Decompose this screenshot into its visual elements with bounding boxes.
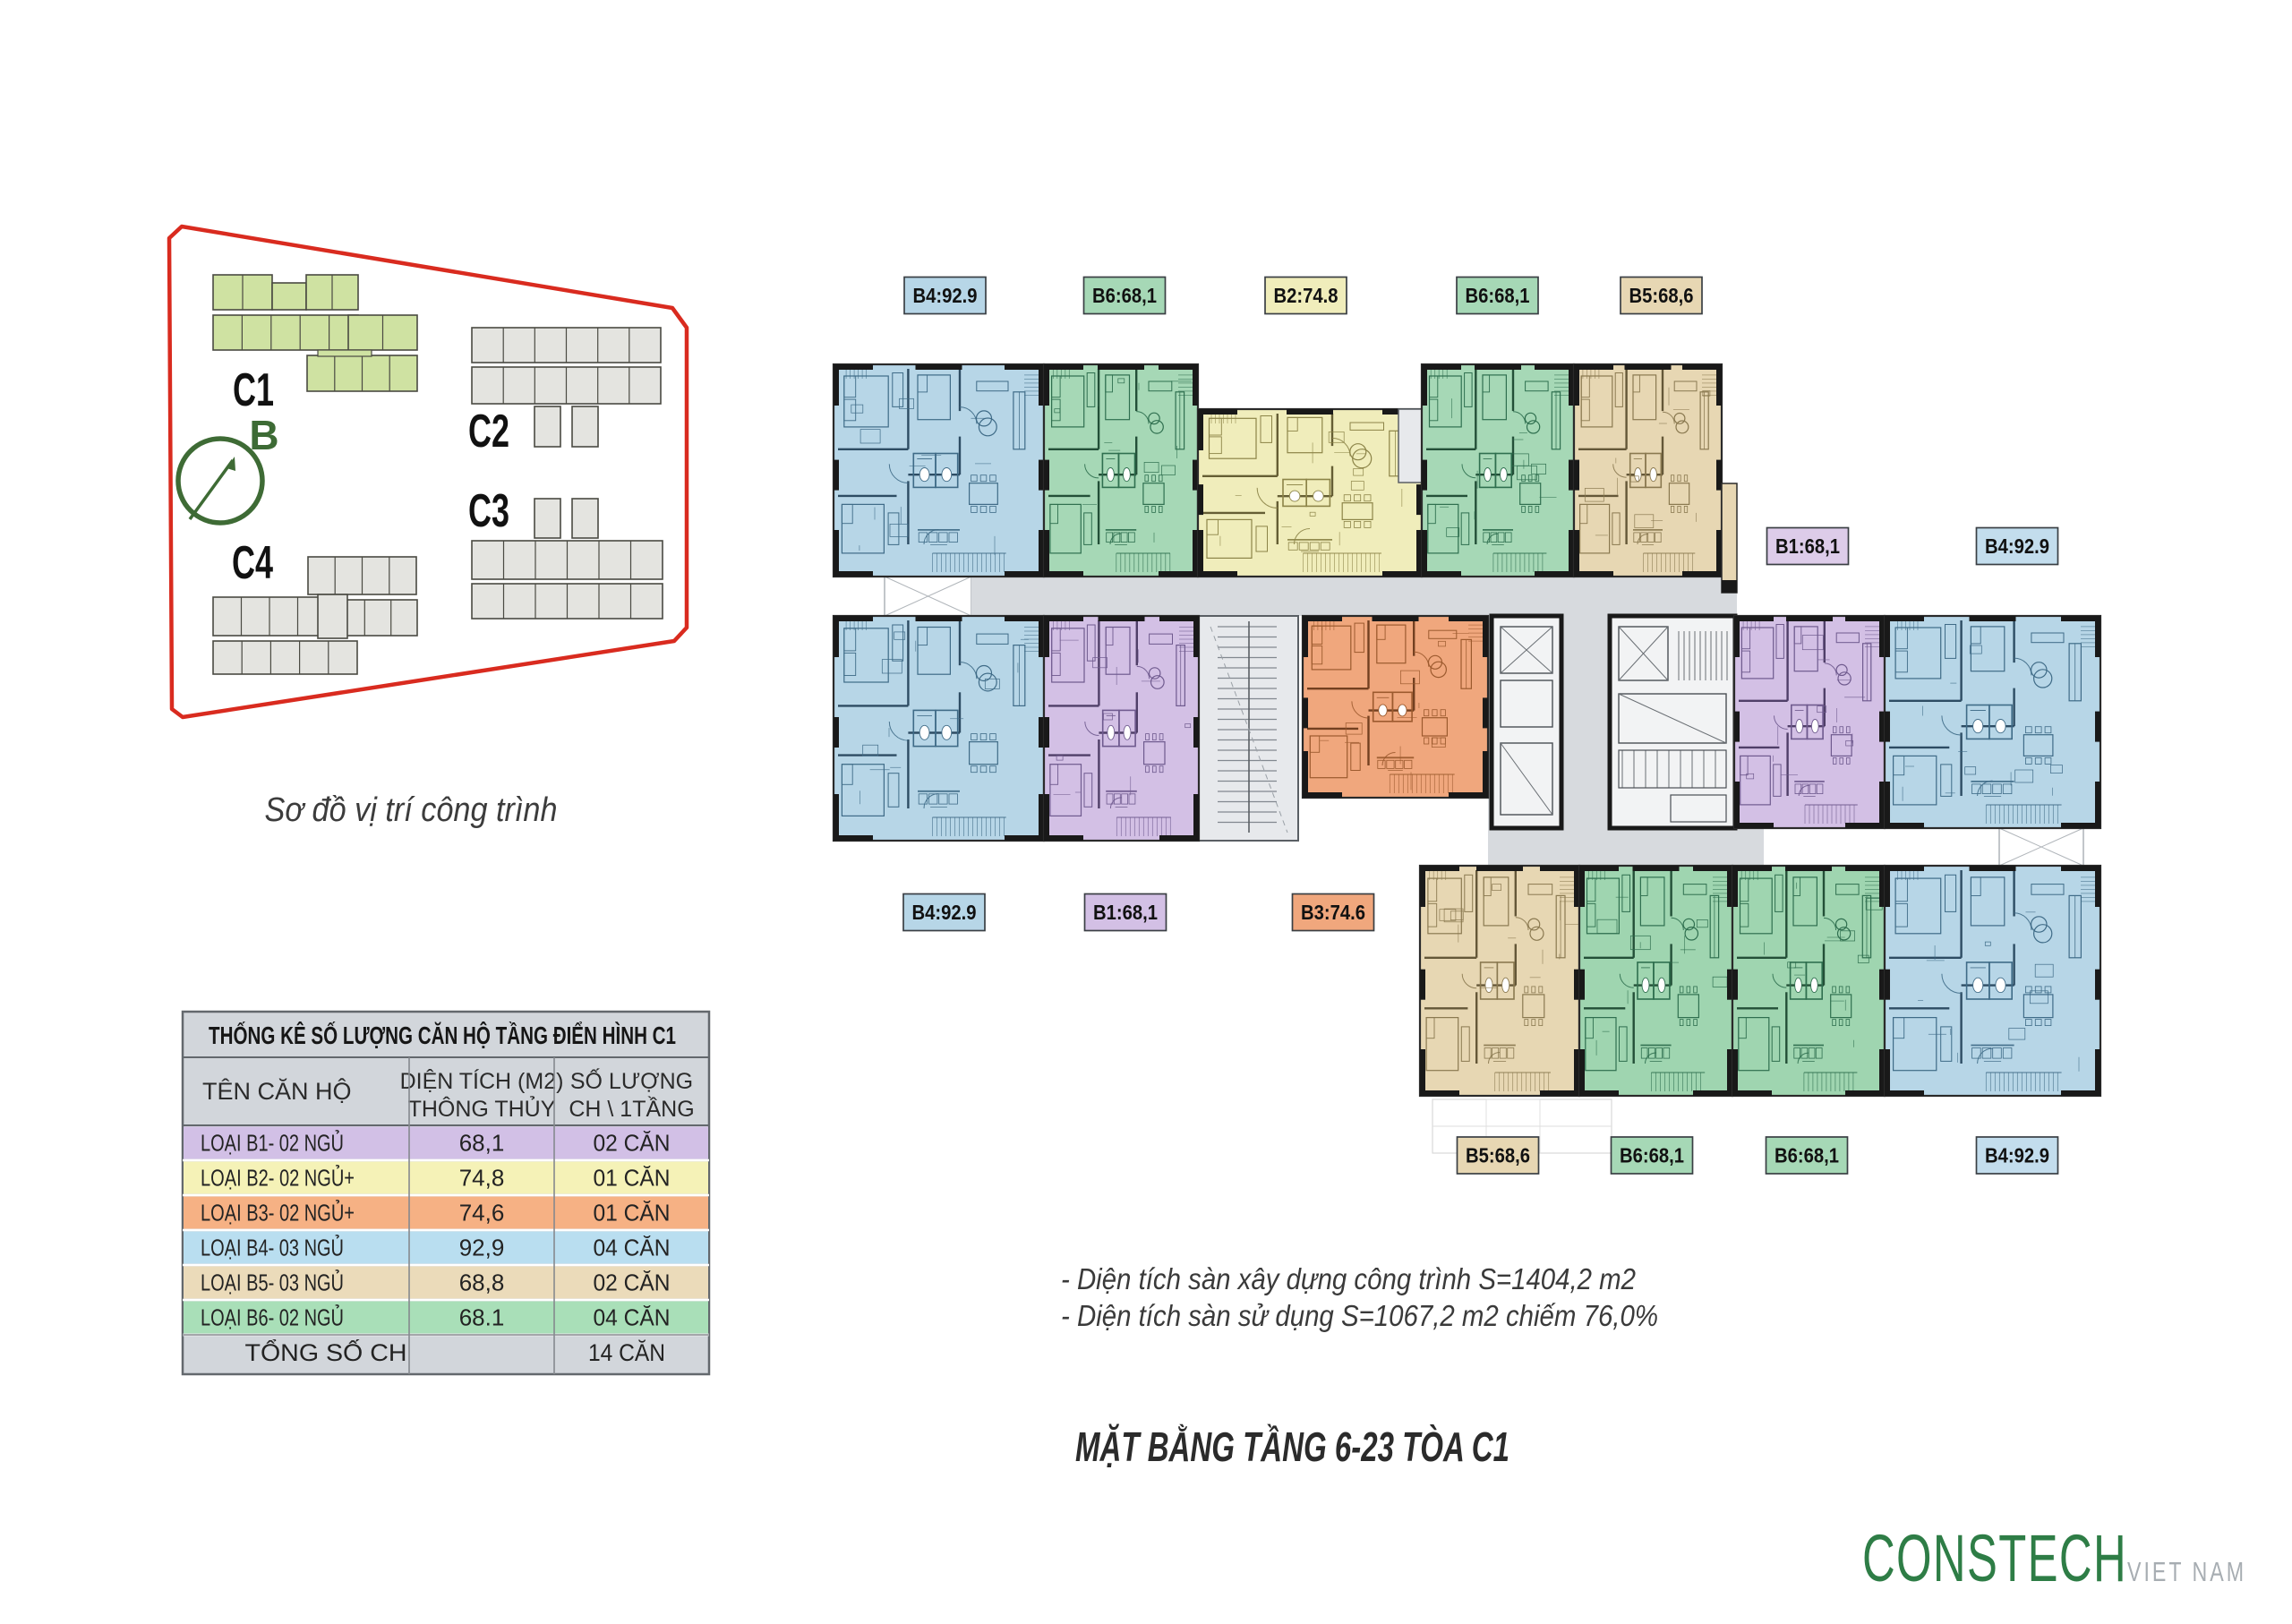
svg-text:B4:92.9: B4:92.9 — [1985, 534, 2049, 558]
svg-text:LOẠI B5- 03 NGỦ: LOẠI B5- 03 NGỦ — [201, 1269, 344, 1296]
svg-text:B6:68,1: B6:68,1 — [1775, 1144, 1839, 1167]
svg-text:- Diện tích sàn xây dựng công: - Diện tích sàn xây dựng công trình S=14… — [1061, 1262, 1636, 1295]
svg-text:68,8: 68,8 — [459, 1269, 505, 1296]
svg-text:B4:92.9: B4:92.9 — [912, 901, 977, 924]
svg-text:CONSTECH: CONSTECH — [1862, 1521, 2127, 1595]
svg-text:TÊN CĂN HỘ: TÊN CĂN HỘ — [202, 1077, 352, 1105]
svg-text:14 CĂN: 14 CĂN — [588, 1339, 665, 1366]
svg-text:DIỆN TÍCH (M2): DIỆN TÍCH (M2) — [400, 1068, 564, 1094]
svg-text:B1:68,1: B1:68,1 — [1093, 901, 1158, 924]
svg-text:B5:68,6: B5:68,6 — [1466, 1144, 1530, 1167]
svg-text:SỐ LƯỢNG: SỐ LƯỢNG — [570, 1067, 693, 1094]
svg-text:THỐNG KÊ SỐ LƯỢNG CĂN HỘ TẦNG: THỐNG KÊ SỐ LƯỢNG CĂN HỘ TẦNG ĐIỂN HÌNH … — [209, 1021, 676, 1049]
svg-text:B2:74.8: B2:74.8 — [1274, 284, 1338, 307]
svg-text:LOẠI B1- 02 NGỦ: LOẠI B1- 02 NGỦ — [201, 1129, 344, 1157]
svg-text:02 CĂN: 02 CĂN — [594, 1130, 671, 1157]
svg-text:01 CĂN: 01 CĂN — [594, 1200, 671, 1227]
svg-text:LOẠI B4- 03 NGỦ: LOẠI B4- 03 NGỦ — [201, 1234, 344, 1261]
svg-text:B6:68,1: B6:68,1 — [1092, 284, 1157, 307]
svg-text:Sơ đồ vị trí công trình: Sơ đồ vị trí công trình — [265, 791, 558, 829]
svg-text:68.1: 68.1 — [459, 1304, 505, 1331]
svg-text:C4: C4 — [232, 537, 273, 589]
svg-text:- Diện tích sàn sử dụng S=1067: - Diện tích sàn sử dụng S=1067,2 m2 chiế… — [1061, 1299, 1658, 1332]
svg-text:74,6: 74,6 — [459, 1200, 505, 1227]
svg-text:B3:74.6: B3:74.6 — [1301, 901, 1365, 924]
svg-text:B1:68,1: B1:68,1 — [1775, 534, 1840, 558]
svg-text:LOẠI B3- 02 NGỦ+: LOẠI B3- 02 NGỦ+ — [201, 1199, 355, 1227]
svg-text:02 CĂN: 02 CĂN — [594, 1269, 671, 1296]
svg-text:CH \ 1TẦNG: CH \ 1TẦNG — [569, 1096, 694, 1122]
svg-text:C1: C1 — [233, 364, 274, 416]
svg-text:LOẠI B6- 02 NGỦ: LOẠI B6- 02 NGỦ — [201, 1303, 344, 1331]
svg-text:VIET NAM: VIET NAM — [2127, 1556, 2246, 1587]
svg-text:04 CĂN: 04 CĂN — [594, 1235, 671, 1261]
svg-text:C3: C3 — [468, 485, 509, 537]
svg-text:B6:68,1: B6:68,1 — [1620, 1144, 1684, 1167]
svg-text:THÔNG THỦY: THÔNG THỦY — [408, 1095, 556, 1122]
svg-text:LOẠI B2- 02 NGỦ+: LOẠI B2- 02 NGỦ+ — [201, 1164, 355, 1192]
svg-text:01 CĂN: 01 CĂN — [594, 1165, 671, 1192]
svg-text:B5:68,6: B5:68,6 — [1629, 284, 1694, 307]
svg-text:04 CĂN: 04 CĂN — [594, 1304, 671, 1331]
svg-text:MẶT BẰNG TẦNG 6-23 TÒA C1: MẶT BẰNG TẦNG 6-23 TÒA C1 — [1075, 1423, 1509, 1470]
svg-text:74,8: 74,8 — [459, 1165, 505, 1192]
svg-text:C2: C2 — [468, 406, 509, 457]
svg-text:68,1: 68,1 — [459, 1130, 505, 1157]
svg-text:B4:92.9: B4:92.9 — [1985, 1144, 2049, 1167]
svg-text:B4:92.9: B4:92.9 — [913, 284, 978, 307]
svg-text:92,9: 92,9 — [459, 1235, 505, 1261]
svg-text:B6:68,1: B6:68,1 — [1466, 284, 1530, 307]
svg-text:TỔNG SỐ CH: TỔNG SỐ CH — [245, 1338, 407, 1366]
